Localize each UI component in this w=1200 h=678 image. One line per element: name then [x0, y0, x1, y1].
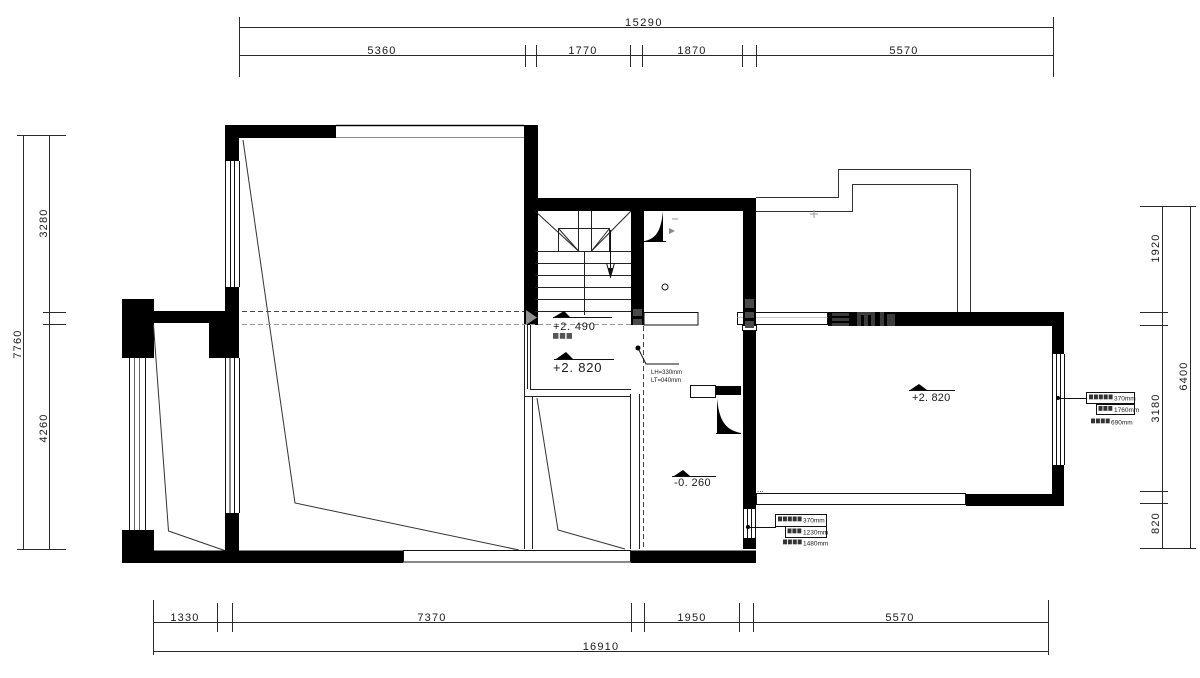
svg-text:1770: 1770 [568, 45, 597, 57]
svg-text:3180: 3180 [1150, 393, 1162, 422]
svg-text:6400: 6400 [1178, 361, 1190, 390]
svg-text:+2. 820: +2. 820 [553, 360, 602, 375]
svg-text:1230mm: 1230mm [803, 530, 828, 537]
svg-text:1870: 1870 [677, 45, 706, 57]
svg-text:...: ... [757, 485, 764, 494]
svg-text:LT=040mm: LT=040mm [651, 378, 681, 384]
svg-text:1760mm: 1760mm [1114, 407, 1139, 414]
svg-text:LH=330mm: LH=330mm [651, 370, 682, 376]
svg-text:4260: 4260 [38, 413, 50, 442]
svg-text:5360: 5360 [367, 45, 396, 57]
svg-text:15290: 15290 [625, 17, 663, 29]
svg-text:16910: 16910 [583, 641, 620, 653]
svg-text:820: 820 [1150, 512, 1162, 534]
svg-text:5570: 5570 [885, 612, 914, 624]
svg-text:1330: 1330 [170, 612, 199, 624]
svg-text:1480mm: 1480mm [803, 541, 828, 548]
svg-text:-0. 260: -0. 260 [674, 477, 711, 489]
svg-text:5570: 5570 [889, 45, 918, 57]
svg-text:+2. 490: +2. 490 [553, 321, 596, 333]
svg-text:370mm: 370mm [1114, 396, 1136, 403]
svg-text:+2. 820: +2. 820 [912, 392, 950, 404]
svg-text:1920: 1920 [1150, 233, 1162, 262]
svg-text:370mm: 370mm [803, 518, 825, 525]
svg-text:1950: 1950 [677, 612, 706, 624]
svg-text:7760: 7760 [12, 329, 24, 358]
svg-text:690mm: 690mm [1111, 420, 1133, 427]
svg-text:7370: 7370 [417, 612, 446, 624]
svg-text:3280: 3280 [38, 208, 50, 237]
